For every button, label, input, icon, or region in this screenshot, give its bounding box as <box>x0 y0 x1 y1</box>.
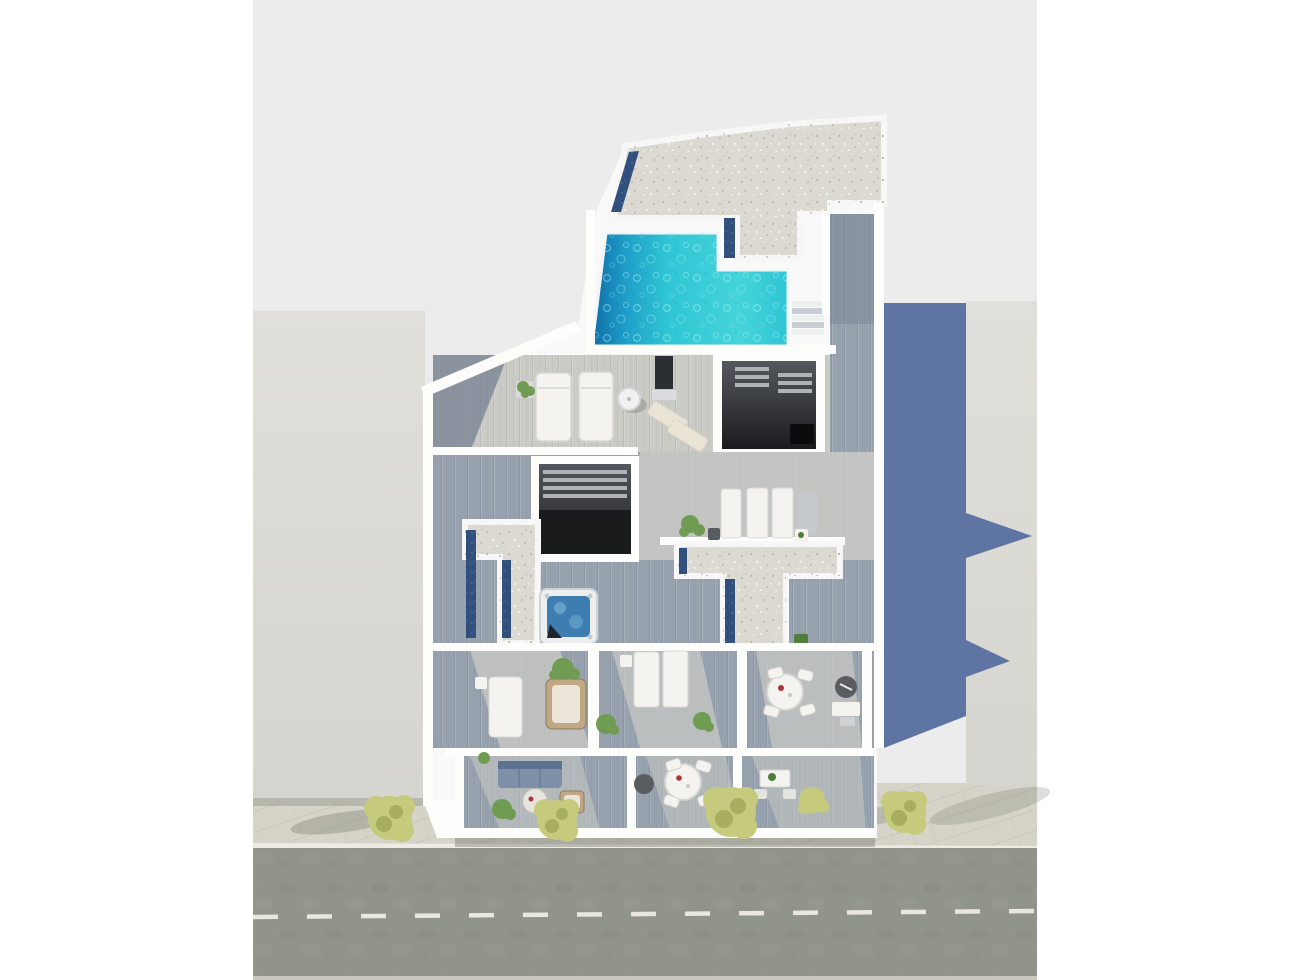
side-table <box>620 655 632 667</box>
sunbed <box>772 488 793 538</box>
sunbed <box>536 373 571 441</box>
corridor-wall <box>822 214 830 314</box>
skylight-strip <box>679 548 687 574</box>
hot-tub-jet <box>545 594 550 599</box>
neighbor-building-left <box>253 311 425 806</box>
shower-base <box>652 390 676 400</box>
hot-tub-jet <box>588 594 593 599</box>
side-table <box>708 528 720 540</box>
wicker-cushion <box>552 685 580 723</box>
render-stage <box>0 0 1290 980</box>
aerial-render <box>0 0 1290 980</box>
sunbed <box>579 372 613 441</box>
east-parapet <box>874 203 884 748</box>
table-decor <box>788 693 792 697</box>
hot-tub-ripple <box>569 615 583 629</box>
skylight-texture <box>466 530 476 638</box>
left-neighbor-roof <box>253 311 425 801</box>
room-wall <box>433 643 874 651</box>
sunbed <box>721 489 741 538</box>
corridor-shade <box>830 214 874 324</box>
room-wall <box>862 643 872 751</box>
road-bottom-strip <box>253 976 1037 980</box>
hot-tub <box>540 589 597 644</box>
terrace-wall <box>445 748 874 756</box>
sunbed <box>663 651 688 707</box>
terrace-wall <box>455 754 464 830</box>
table-decor <box>529 797 534 802</box>
table-decor <box>686 784 690 788</box>
hot-tub-jet <box>588 635 593 640</box>
rooms-band <box>433 643 874 751</box>
pool-rim-wall <box>586 345 836 354</box>
desk <box>832 702 860 716</box>
terraces-band <box>423 748 874 838</box>
sofa-back <box>498 761 562 769</box>
parasol-pole <box>627 397 631 401</box>
pool-rim-wall <box>586 210 595 350</box>
terrace-divider <box>627 754 636 830</box>
deck-wall <box>433 447 638 455</box>
stairwell-shaft <box>539 510 631 554</box>
dining-table <box>767 674 803 710</box>
side-table <box>475 677 487 689</box>
room-wall <box>737 643 747 751</box>
roof-skylight-texture <box>724 218 735 258</box>
stairwell-shaft <box>790 424 814 444</box>
pool-step <box>792 322 824 328</box>
table-plant <box>768 773 776 781</box>
sunbed-shaded <box>798 493 817 535</box>
shower-panel <box>655 356 673 389</box>
table-decor <box>676 775 682 781</box>
wicker-side-table <box>634 774 654 794</box>
pool-step <box>792 315 824 321</box>
gravel-canopy-left <box>465 522 538 643</box>
sunbed <box>634 652 659 707</box>
chair <box>783 789 796 799</box>
skylight-texture <box>502 560 511 638</box>
skylight-texture <box>725 579 735 645</box>
desk-chair <box>840 717 855 726</box>
sunbed <box>747 488 768 538</box>
room-wall <box>588 643 599 751</box>
stairwell-void-upper <box>713 353 825 457</box>
building-base-shadow <box>455 838 875 847</box>
pool-step <box>792 329 824 335</box>
stairwell-void-lower <box>531 456 639 562</box>
pool-steps <box>792 301 824 335</box>
table-plant <box>798 532 804 538</box>
table-decor <box>778 685 784 691</box>
hot-tub-ripple <box>554 602 566 614</box>
pool-step <box>792 308 824 314</box>
pool-step <box>792 301 824 307</box>
terrace-front-wall <box>450 828 874 838</box>
sunbed <box>489 677 522 737</box>
west-wall <box>423 386 433 806</box>
